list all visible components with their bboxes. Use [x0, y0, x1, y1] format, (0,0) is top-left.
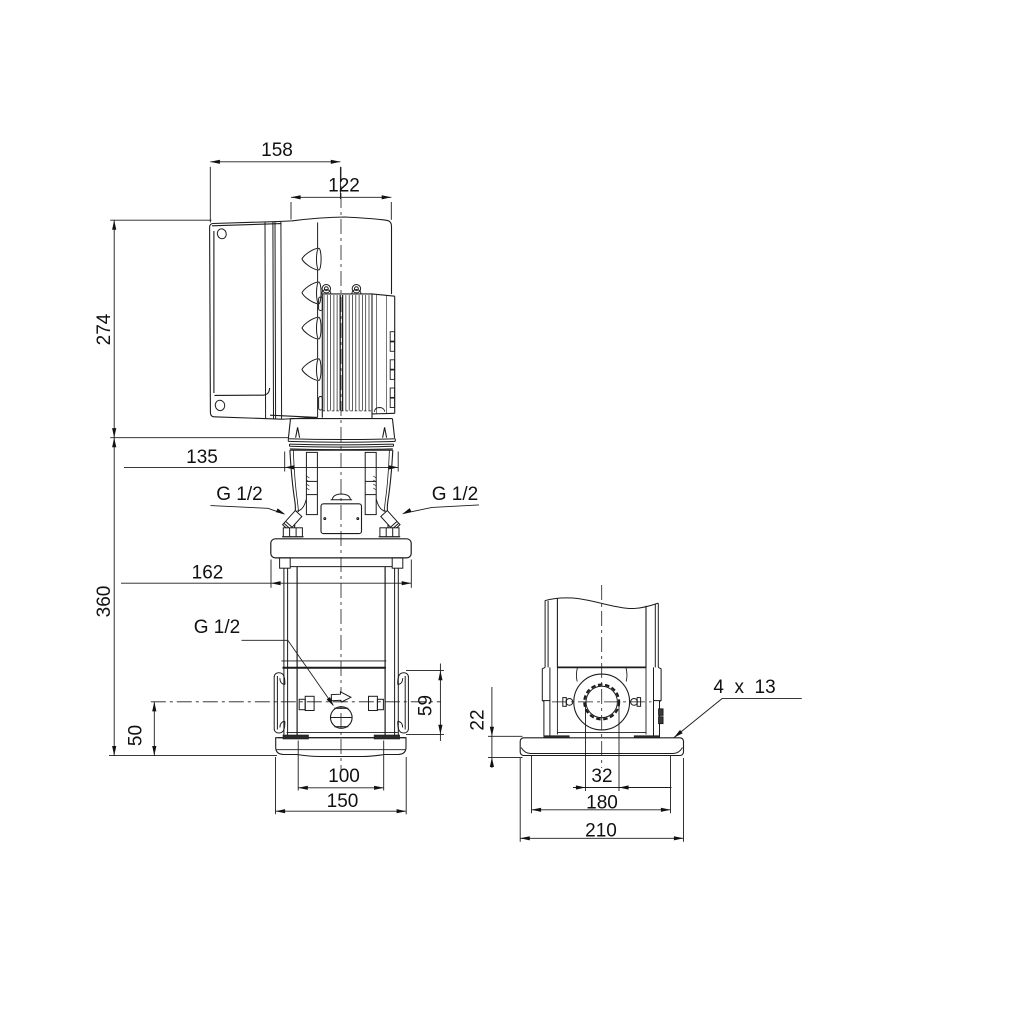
svg-text:274: 274: [94, 313, 115, 345]
svg-text:360: 360: [94, 586, 115, 618]
svg-text:G 1/2: G 1/2: [216, 484, 262, 505]
svg-text:50: 50: [126, 725, 147, 746]
svg-text:59: 59: [416, 695, 437, 716]
svg-text:210: 210: [585, 821, 617, 842]
svg-text:162: 162: [192, 563, 224, 584]
svg-text:180: 180: [586, 793, 618, 814]
svg-text:32: 32: [591, 766, 612, 787]
svg-text:122: 122: [328, 176, 360, 197]
svg-text:158: 158: [261, 140, 293, 161]
svg-text:G 1/2: G 1/2: [194, 617, 240, 638]
svg-text:150: 150: [327, 791, 359, 812]
svg-text:4 x 13: 4 x 13: [713, 677, 775, 698]
svg-text:G 1/2: G 1/2: [432, 484, 478, 505]
svg-text:135: 135: [186, 447, 218, 468]
svg-text:22: 22: [468, 709, 489, 730]
svg-text:100: 100: [328, 766, 360, 787]
